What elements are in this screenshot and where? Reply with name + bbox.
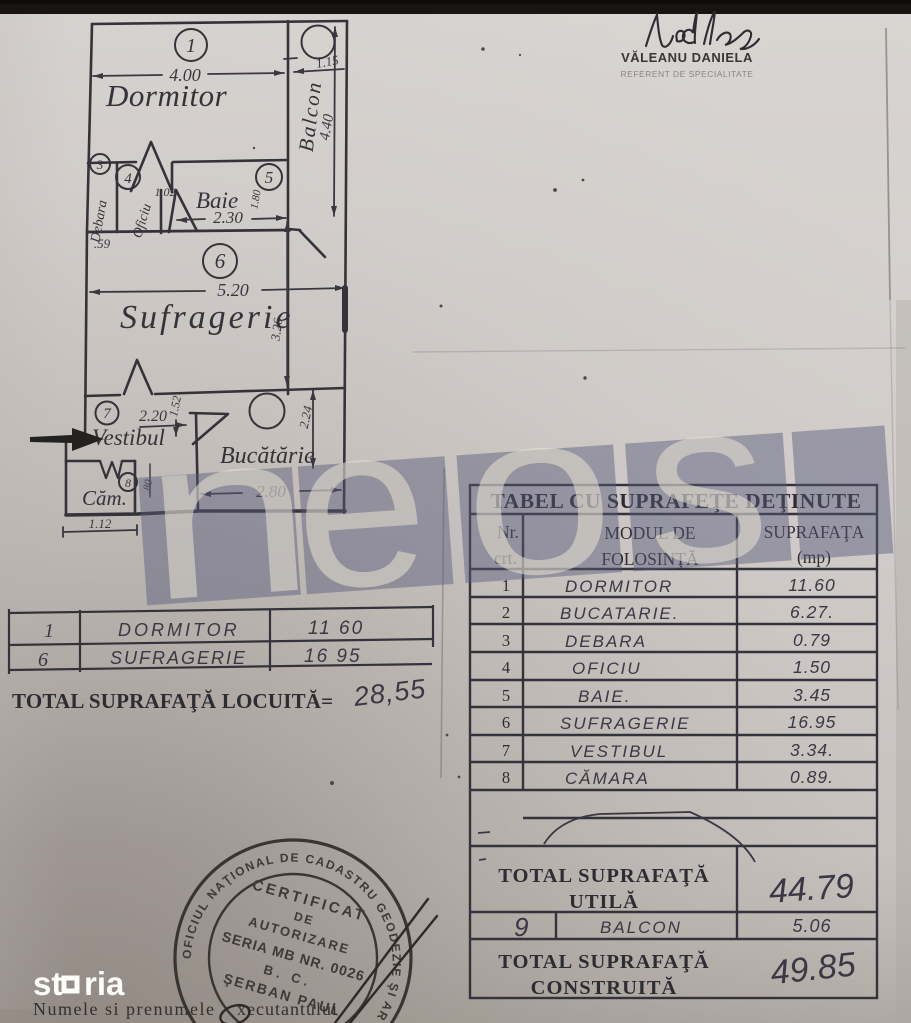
svg-text:3.45: 3.45 (793, 685, 831, 705)
svg-text:6: 6 (502, 713, 510, 732)
svg-text:0.89.: 0.89. (790, 767, 834, 787)
svg-text:Dormitor: Dormitor (105, 78, 228, 113)
svg-text:5.06: 5.06 (792, 916, 831, 936)
svg-text:3.34.: 3.34. (790, 740, 834, 760)
svg-text:SUFRAGERIE: SUFRAGERIE (110, 648, 247, 668)
svg-text:VESTIBUL: VESTIBUL (570, 742, 668, 761)
svg-text:BAIE.: BAIE. (578, 687, 631, 706)
svg-text:1.50: 1.50 (793, 657, 831, 677)
svg-text:OFICIU: OFICIU (572, 659, 642, 678)
svg-text:TOTAL SUPRAFAŢĂ: TOTAL SUPRAFAŢĂ (498, 949, 710, 973)
svg-text:9: 9 (514, 912, 528, 942)
svg-text:3: 3 (96, 157, 104, 172)
svg-text:4.00: 4.00 (169, 65, 201, 85)
svg-text:5: 5 (502, 686, 510, 705)
svg-text:xecutantului: xecutantului (237, 999, 338, 1019)
svg-text:VĂLEANU DANIELA: VĂLEANU DANIELA (621, 50, 753, 65)
svg-text:0.79: 0.79 (793, 630, 831, 650)
svg-text:Sufragerie: Sufragerie (120, 299, 294, 336)
svg-text:REFERENT DE SPECIALITATE: REFERENT DE SPECIALITATE (621, 69, 754, 79)
svg-text:SUFRAGERIE: SUFRAGERIE (560, 714, 691, 733)
svg-text:CĂMARA: CĂMARA (565, 769, 650, 788)
svg-text:ria: ria (84, 965, 125, 1002)
svg-text:1.12: 1.12 (89, 516, 112, 531)
svg-text:6: 6 (215, 249, 226, 273)
svg-text:2.30: 2.30 (213, 208, 243, 227)
svg-text:8: 8 (502, 768, 510, 787)
svg-text:5.20: 5.20 (217, 280, 249, 300)
svg-text:16 95: 16 95 (304, 646, 362, 667)
svg-text:BALCON: BALCON (600, 918, 682, 937)
svg-text:1.02: 1.02 (155, 185, 176, 199)
svg-text:Numele si prenumele: Numele si prenumele (33, 999, 215, 1019)
svg-text:5: 5 (265, 168, 274, 187)
svg-text:6.27.: 6.27. (790, 602, 834, 622)
svg-text:1: 1 (44, 620, 54, 642)
svg-text:TOTAL SUPRAFAŢĂ: TOTAL SUPRAFAŢĂ (498, 863, 710, 887)
svg-text:6: 6 (38, 649, 48, 671)
svg-text:4: 4 (124, 171, 132, 187)
svg-text:44.79: 44.79 (768, 867, 856, 911)
svg-text:4: 4 (502, 658, 510, 677)
svg-text:e: e (286, 371, 435, 639)
svg-text:.59: .59 (94, 236, 111, 251)
svg-text:TOTAL SUPRAFAŢĂ LOCUITĂ=: TOTAL SUPRAFAŢĂ LOCUITĂ= (12, 689, 333, 713)
svg-text:3: 3 (502, 631, 510, 650)
svg-text:CONSTRUITĂ: CONSTRUITĂ (531, 975, 678, 999)
svg-text:st: st (33, 965, 62, 1002)
svg-text:1: 1 (186, 35, 196, 57)
svg-text:DEBARA: DEBARA (565, 632, 647, 651)
svg-text:o: o (455, 358, 621, 627)
svg-text:11.60: 11.60 (788, 575, 836, 595)
svg-text:s: s (636, 348, 776, 614)
svg-text:Căm.: Căm. (82, 486, 127, 510)
svg-text:7: 7 (502, 741, 510, 760)
svg-text:16.95: 16.95 (788, 712, 837, 732)
svg-text:UTILĂ: UTILĂ (569, 889, 639, 913)
